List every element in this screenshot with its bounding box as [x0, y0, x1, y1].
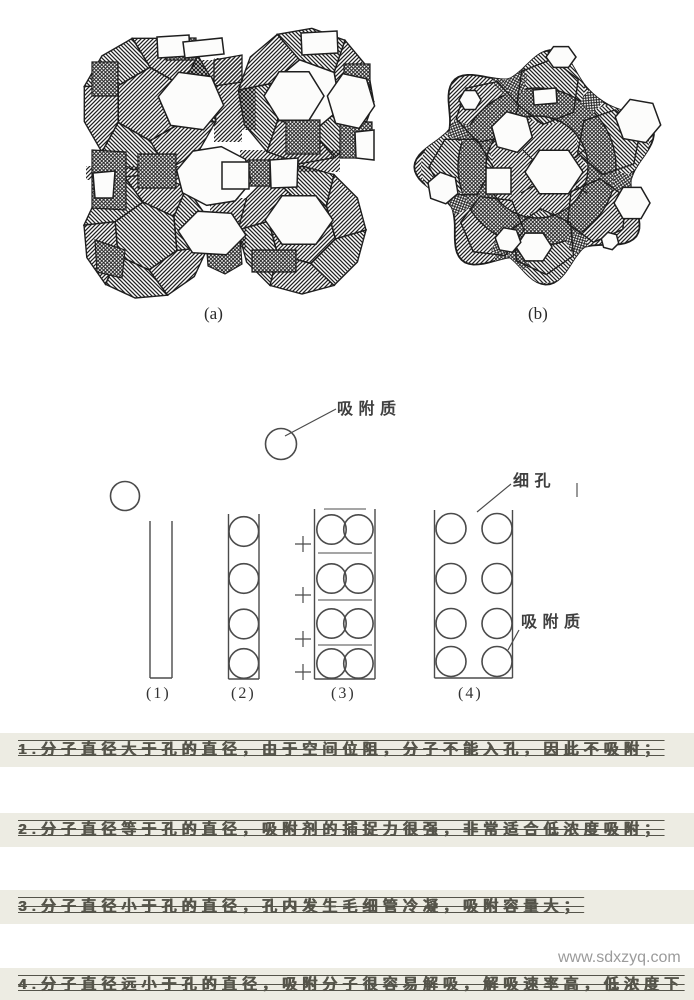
svg-text:细孔: 细孔	[513, 471, 556, 490]
svg-text:吸附质: 吸附质	[337, 399, 402, 418]
svg-text:(2): (2)	[231, 685, 256, 702]
svg-text:吸附质: 吸附质	[521, 612, 586, 631]
svg-text:(b): (b)	[528, 304, 548, 323]
svg-text:(1): (1)	[146, 685, 171, 702]
svg-text:(a): (a)	[204, 304, 223, 323]
svg-text:(4): (4)	[458, 685, 483, 702]
svg-text:(3): (3)	[331, 685, 356, 702]
